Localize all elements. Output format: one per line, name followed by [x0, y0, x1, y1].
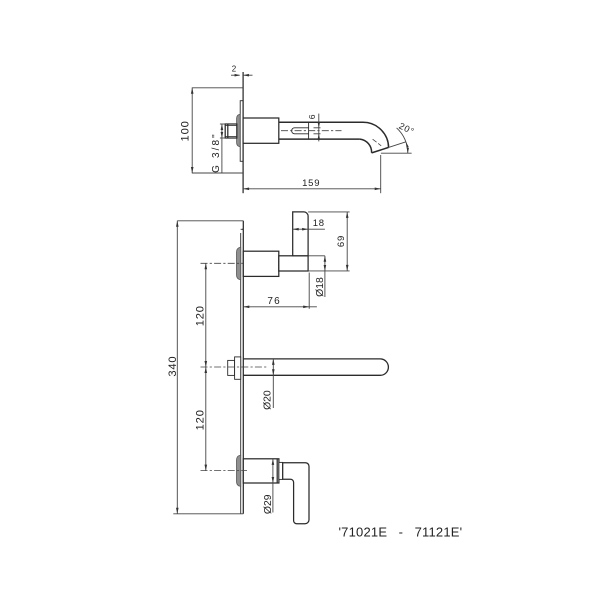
- svg-text:20°: 20°: [397, 121, 416, 137]
- svg-text:100: 100: [180, 120, 192, 141]
- svg-text:6: 6: [307, 114, 317, 119]
- svg-text:2: 2: [232, 65, 237, 74]
- svg-text:69: 69: [336, 235, 347, 247]
- svg-text:159: 159: [302, 178, 320, 189]
- svg-text:76: 76: [267, 296, 281, 307]
- svg-text:'71021E - 71121E': '71021E - 71121E': [339, 524, 463, 539]
- svg-text:Ø18: Ø18: [315, 277, 326, 297]
- svg-text:Ø29: Ø29: [263, 494, 274, 514]
- svg-text:Ø20: Ø20: [262, 390, 273, 410]
- svg-text:G 3/8": G 3/8": [211, 132, 222, 173]
- svg-text:340: 340: [167, 356, 179, 377]
- svg-text:18: 18: [313, 218, 325, 229]
- svg-text:120: 120: [194, 305, 206, 326]
- svg-text:120: 120: [194, 409, 206, 430]
